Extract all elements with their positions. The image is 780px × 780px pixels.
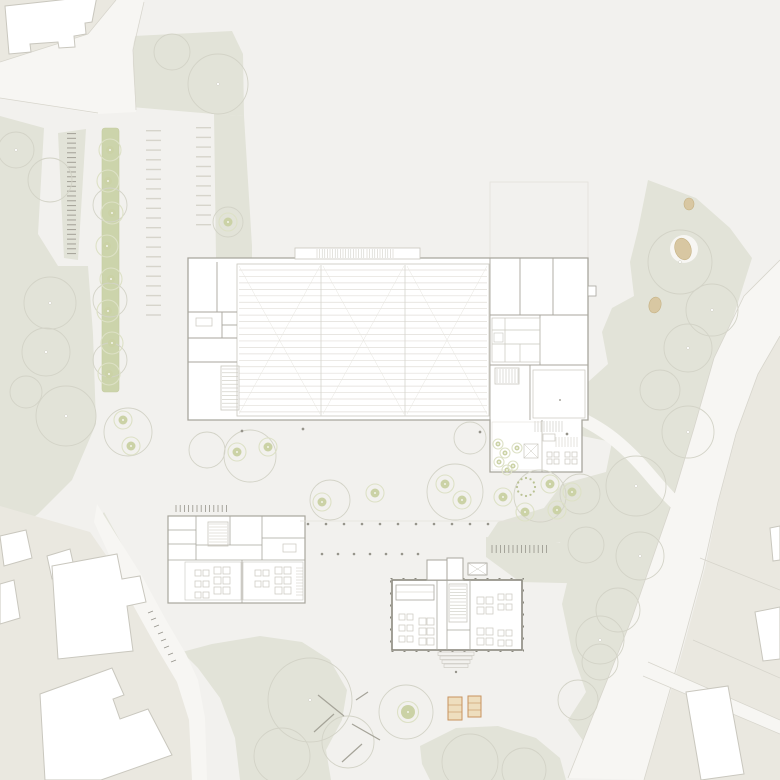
historic-entrance-steps-3 [444, 664, 468, 668]
east-wing-room-mark [559, 399, 561, 401]
historic-building [391, 558, 524, 673]
walkway-columns-south-0 [321, 553, 324, 556]
planting-dot-circle-0 [534, 486, 536, 488]
plaza-pole-dots-0 [241, 430, 243, 432]
planting-dot-circle-2 [529, 494, 531, 496]
tree-canopy-outlines-16 [454, 422, 486, 454]
parking-ticks-triangle-14 [67, 200, 76, 201]
parking-ticks-triangle-23 [67, 243, 76, 244]
tree-trunk-dots-5 [711, 309, 714, 312]
parking-dashes-col-a-1 [146, 140, 161, 141]
parking-ticks-triangle-1 [67, 138, 76, 139]
tree-trunk-dots-2 [65, 415, 68, 418]
tree-canopy-outlines-10 [189, 432, 225, 468]
historic-annex-2 [447, 558, 463, 580]
parking-ticks-triangle-13 [67, 195, 76, 196]
parking-ticks-triangle-3 [67, 147, 76, 148]
parking-dashes-col-b-4 [196, 166, 211, 167]
historic-entrance-steps-1 [440, 656, 472, 660]
planting-dot-circle-11 [533, 481, 535, 483]
tree-trunk-dots-11 [599, 639, 602, 642]
parking-ticks-triangle-18 [67, 219, 76, 220]
walkway-columns-north-0 [307, 523, 310, 526]
strip-trees-trunk-3 [106, 245, 108, 247]
sandpit-tree-trunk-0 [407, 711, 409, 713]
green-parking-triangle [58, 129, 86, 260]
yard-trees-trunk-10 [549, 483, 551, 485]
tree-canopy-outlines-13 [427, 464, 483, 520]
terrace-plants-trunk-3 [506, 469, 508, 471]
yard-trees-trunk-6 [444, 483, 446, 485]
walkway-columns-south-3 [369, 553, 372, 556]
school-outline [168, 516, 305, 603]
rain-garden-strip [102, 128, 119, 392]
yard-trees-trunk-8 [502, 496, 504, 498]
parking-dashes-col-a-10 [146, 227, 161, 228]
yard-trees-trunk-2 [236, 451, 238, 453]
historic-entrance-steps-0 [438, 652, 474, 656]
walkway-columns-north-3 [361, 523, 364, 526]
walkway-columns-south-6 [417, 553, 420, 556]
walkway-columns-south-5 [401, 553, 404, 556]
yard-trees-trunk-11 [571, 491, 573, 493]
yard-trees-trunk-3 [267, 446, 269, 448]
parking-dashes-col-b-6 [196, 185, 211, 186]
tree-trunk-dots-4 [679, 261, 682, 264]
parking-ticks-triangle-17 [67, 215, 76, 216]
parking-dashes-col-b-9 [196, 214, 211, 215]
terrace-plants-trunk-2 [498, 461, 500, 463]
strip-trees-trunk-0 [109, 149, 111, 151]
parking-dashes-col-b-1 [196, 137, 211, 138]
planting-dot-circle-6 [516, 486, 518, 488]
tree-trunk-dots-10 [309, 699, 312, 702]
strip-trees-trunk-4 [110, 278, 112, 280]
parking-ticks-triangle-22 [67, 239, 76, 240]
planting-dot-circle-5 [517, 490, 519, 492]
parking-dashes-col-a-7 [146, 198, 161, 199]
strip-trees-trunk-1 [107, 180, 109, 182]
green-playground-west [182, 636, 347, 780]
terrace-plants-trunk-4 [516, 447, 518, 449]
strip-trees-trunk-5 [107, 310, 109, 312]
parking-ticks-triangle-16 [67, 210, 76, 211]
parking-dashes-col-a-9 [146, 217, 161, 218]
yard-trees-trunk-1 [130, 445, 132, 447]
yard-trees-trunk-7 [461, 499, 463, 501]
tree-trunk-dots-1 [45, 351, 48, 354]
planting-dot-circle-9 [525, 477, 527, 479]
plan-svg [0, 0, 780, 780]
parking-dashes-col-a-15 [146, 276, 161, 277]
parking-dashes-col-a-18 [146, 305, 161, 306]
parking-dashes-col-a-19 [146, 314, 161, 315]
planting-dot-circle-7 [517, 481, 519, 483]
parking-ticks-triangle-15 [67, 205, 76, 206]
walkway-columns-north-8 [451, 523, 454, 526]
parking-dashes-col-a-4 [146, 169, 161, 170]
parking-dashes-col-a-12 [146, 246, 161, 247]
parking-dashes-col-b-8 [196, 205, 211, 206]
walkway-columns-north-5 [397, 523, 400, 526]
parking-ticks-triangle-25 [67, 253, 76, 254]
tree-trunk-dots-9 [639, 555, 642, 558]
parking-ticks-triangle-0 [67, 133, 76, 134]
parking-dashes-col-a-8 [146, 208, 161, 209]
walkway-columns-south-2 [353, 553, 356, 556]
play-mat-1 [448, 697, 462, 720]
planting-dot-circle-4 [520, 494, 522, 496]
parking-dashes-col-b-2 [196, 146, 211, 147]
yard-trees-trunk-9 [524, 511, 526, 513]
school-building [168, 505, 305, 603]
play-logs-3 [342, 744, 362, 762]
tree-trunk-dots-3 [217, 83, 220, 86]
parking-dashes-col-a-14 [146, 266, 161, 267]
parking-dashes-col-a-13 [146, 256, 161, 257]
roof-outline-faint [490, 182, 588, 258]
yard-trees-trunk-4 [321, 501, 323, 503]
planting-dot-circle-10 [529, 478, 531, 480]
parking-dashes-col-b-7 [196, 195, 211, 196]
green-playground-east [420, 726, 566, 780]
parking-dashes-col-b-5 [196, 176, 211, 177]
yard-trees-trunk-0 [122, 419, 124, 421]
terrace-plants-trunk-5 [512, 465, 514, 467]
historic-entrance-mark [455, 671, 457, 673]
parking-dashes-col-b-0 [196, 127, 211, 128]
walkway-columns-north-10 [487, 523, 490, 526]
parking-dashes-col-a-17 [146, 295, 161, 296]
walkway-columns-north-6 [415, 523, 418, 526]
walkway-columns-north-2 [343, 523, 346, 526]
planting-dot-circle-3 [525, 495, 527, 497]
parking-dashes-col-a-5 [146, 179, 161, 180]
play-logs-2 [352, 724, 380, 740]
parking-dashes-col-b-3 [196, 156, 211, 157]
parking-ticks-triangle-21 [67, 234, 76, 235]
planting-dot-circle-1 [533, 490, 535, 492]
parking-dashes-col-a-0 [146, 130, 161, 131]
tree-trunk-dots-6 [687, 347, 690, 350]
plaza-pole-dots-2 [479, 431, 481, 433]
parking-ticks-triangle-20 [67, 229, 76, 230]
parking-ticks-triangle-4 [67, 152, 76, 153]
historic-entrance-steps-2 [442, 660, 470, 664]
yard-trees-trunk-12 [556, 509, 558, 511]
parking-dashes-col-a-6 [146, 188, 161, 189]
site-plan [0, 0, 780, 780]
tree-trunk-dots-0 [49, 302, 52, 305]
parking-dashes-col-a-2 [146, 149, 161, 150]
strip-trees-trunk-6 [111, 342, 113, 344]
yard-trees-trunk-5 [374, 492, 376, 494]
plaza-pole-dots-3 [566, 433, 568, 435]
parking-dashes-col-a-11 [146, 237, 161, 238]
strip-trees-trunk-2 [111, 212, 113, 214]
tree-canopy-outlines-12 [310, 480, 350, 520]
parking-ticks-triangle-5 [67, 157, 76, 158]
tree-trunk-dots-7 [635, 485, 638, 488]
parking-ticks-triangle-8 [67, 171, 76, 172]
terrace-plants-trunk-0 [497, 443, 499, 445]
walkway-columns-north-1 [325, 523, 328, 526]
parking-dashes-col-b-10 [196, 224, 211, 225]
play-logs-4 [356, 692, 368, 700]
parking-dashes-col-a-3 [146, 159, 161, 160]
parking-ticks-triangle-24 [67, 248, 76, 249]
walkway-columns-north-7 [433, 523, 436, 526]
play-mat-2 [468, 696, 481, 717]
parking-ticks-triangle-6 [67, 162, 76, 163]
tree-trunk-dots-12 [15, 149, 18, 152]
parking-ticks-triangle-19 [67, 224, 76, 225]
facade-bump-east [588, 286, 596, 296]
walkway-columns-south-1 [337, 553, 340, 556]
walkway-columns-north-9 [469, 523, 472, 526]
skylight-strip [295, 248, 420, 259]
parking-ticks-triangle-2 [67, 143, 76, 144]
yard-trees-trunk-13 [227, 221, 229, 223]
tree-trunk-dots-8 [687, 431, 690, 434]
strip-trees-trunk-7 [108, 373, 110, 375]
walkway-columns-south-4 [385, 553, 388, 556]
parking-dashes-col-a-16 [146, 285, 161, 286]
historic-annex-1 [427, 560, 447, 580]
planting-dot-circle-8 [520, 478, 522, 480]
plaza-pole-dots-1 [302, 428, 304, 430]
walkway-columns-north-4 [379, 523, 382, 526]
gravel-patch-3 [684, 198, 694, 210]
terrace-plants-trunk-1 [504, 452, 506, 454]
